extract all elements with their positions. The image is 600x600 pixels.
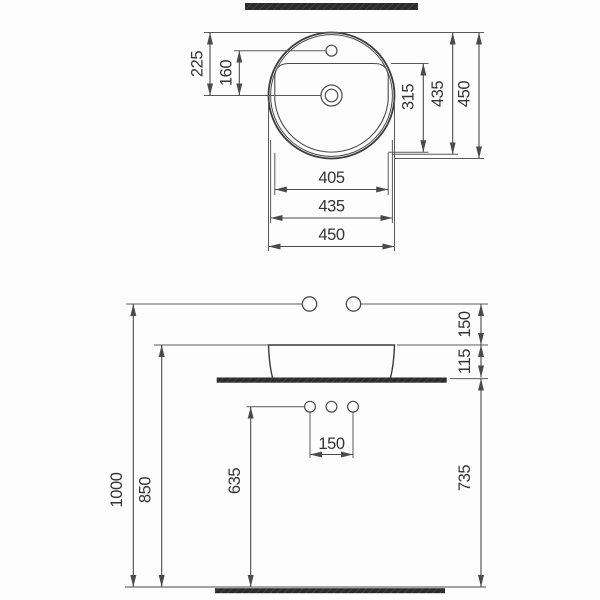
basin-profile xyxy=(269,345,395,378)
drawing-svg: 225 160 315 435 450 405 435 450 xyxy=(0,0,600,600)
dim-label-115: 115 xyxy=(456,349,474,374)
bowl-outline xyxy=(275,64,388,153)
top-view: 225 160 315 435 450 405 435 450 xyxy=(189,3,485,251)
dim-label-1000: 1000 xyxy=(108,472,126,507)
drain-connection-left xyxy=(305,401,316,412)
dim-label-150-supply: 150 xyxy=(456,311,474,338)
drain-outer-circle xyxy=(321,85,342,106)
dim-label-435-horizontal: 435 xyxy=(318,198,345,216)
front-view-dimensions xyxy=(133,304,481,587)
dim-label-435-vertical: 435 xyxy=(429,81,447,108)
dim-label-150-drain: 150 xyxy=(318,435,345,453)
wall-mount-bar xyxy=(245,3,418,10)
countertop-slab xyxy=(217,378,447,383)
faucet-hole xyxy=(326,45,337,56)
dim-label-315: 315 xyxy=(400,84,418,111)
dim-label-850: 850 xyxy=(137,477,155,504)
floor-bar xyxy=(215,588,445,593)
dim-label-735: 735 xyxy=(456,465,474,492)
dim-label-450-horizontal: 450 xyxy=(318,226,345,244)
dim-label-450-vertical: 450 xyxy=(456,81,474,108)
dim-label-160: 160 xyxy=(218,60,236,87)
supply-connection-left xyxy=(302,297,316,311)
dim-label-225: 225 xyxy=(189,51,207,78)
drain-connection-right xyxy=(348,401,359,412)
drain-connection-center xyxy=(326,401,337,412)
supply-connection-right xyxy=(346,297,360,311)
front-view: 1000 850 635 735 150 115 150 xyxy=(108,297,488,593)
drain-inner-circle xyxy=(325,89,338,102)
dim-label-405: 405 xyxy=(318,169,345,187)
dim-label-635: 635 xyxy=(226,468,244,495)
washbasin-technical-drawing: 225 160 315 435 450 405 435 450 xyxy=(0,0,600,600)
